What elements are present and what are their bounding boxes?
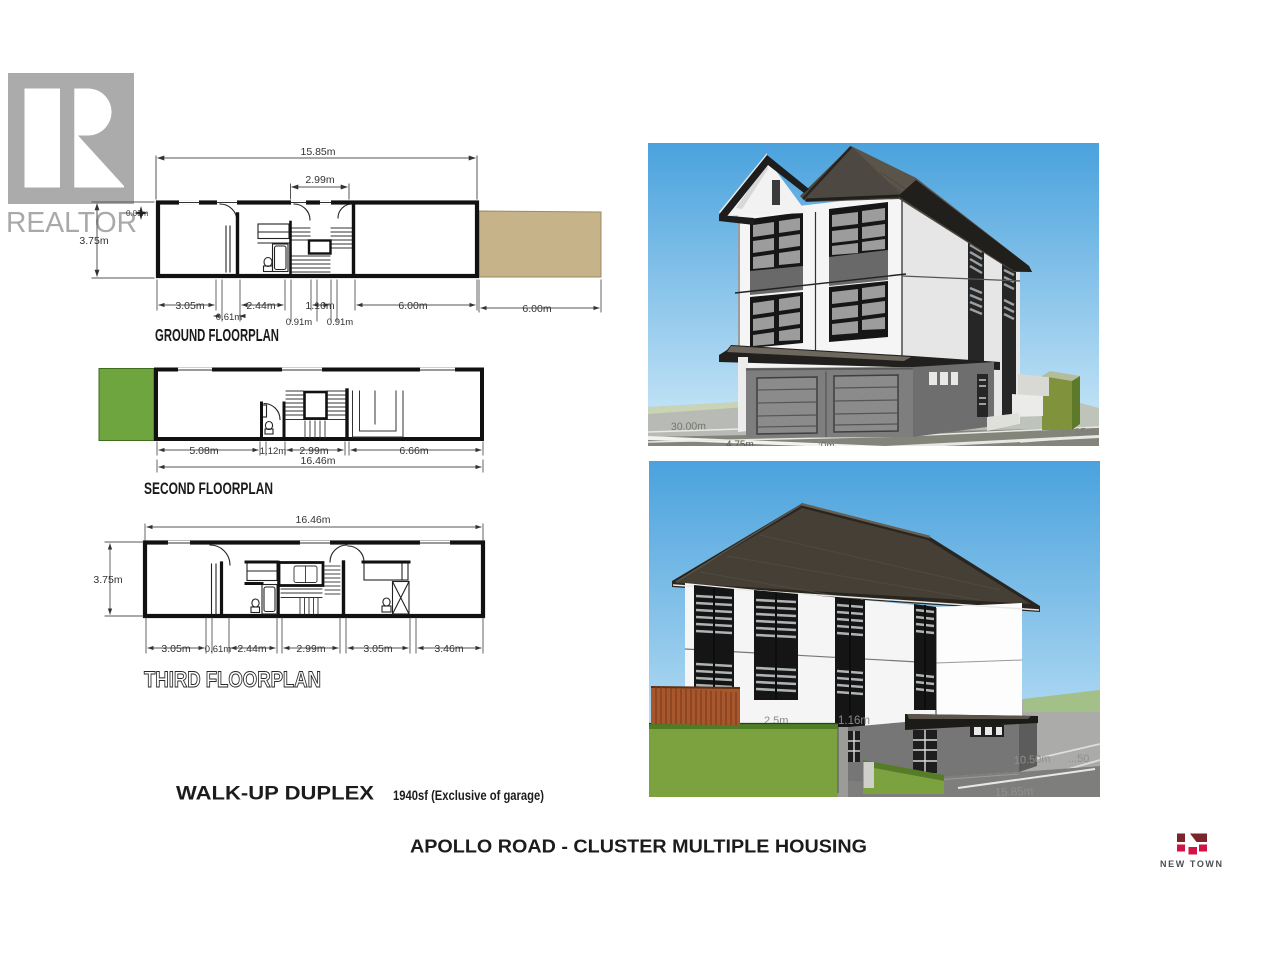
svg-text:2.99m: 2.99m — [305, 174, 334, 186]
svg-text:30.00m: 30.00m — [671, 420, 706, 433]
svg-text:2.44m: 2.44m — [237, 643, 266, 655]
svg-text:NEW TOWN: NEW TOWN — [1160, 859, 1224, 869]
svg-text:3.46m: 3.46m — [434, 643, 463, 655]
svg-text:16.46m: 16.46m — [295, 514, 330, 526]
svg-text:...50: ...50 — [1068, 753, 1089, 765]
svg-text:WALK-UP DUPLEX: WALK-UP DUPLEX — [176, 783, 374, 805]
svg-text:3.75m: 3.75m — [93, 574, 122, 586]
svg-text:3.05m: 3.05m — [363, 643, 392, 655]
svg-text:6.00m: 6.00m — [522, 303, 551, 315]
svg-text:1.12m: 1.12m — [260, 446, 286, 457]
svg-text::0m: :0m — [818, 441, 835, 452]
svg-text:1.16m: 1.16m — [305, 300, 334, 312]
svg-text:0.61m: 0.61m — [216, 312, 242, 323]
svg-text:16.46m: 16.46m — [300, 455, 335, 467]
svg-text:3.75m: 3.75m — [79, 235, 108, 247]
svg-text:0.91m: 0.91m — [327, 317, 353, 328]
svg-text:5.08m: 5.08m — [189, 445, 218, 457]
svg-text:1940sf (Exclusive of garage): 1940sf (Exclusive of garage) — [393, 788, 544, 803]
svg-text:6.66m: 6.66m — [399, 445, 428, 457]
svg-text:2.99m: 2.99m — [296, 643, 325, 655]
svg-text:GROUND FLOORPLAN: GROUND FLOORPLAN — [155, 325, 279, 345]
svg-text:15.85m: 15.85m — [300, 146, 335, 158]
svg-text:6.00m: 6.00m — [398, 300, 427, 312]
svg-text:4.75m: 4.75m — [726, 440, 754, 451]
svg-text:0.61m: 0.61m — [205, 644, 231, 655]
svg-text:10.50m: 10.50m — [1014, 753, 1051, 767]
svg-text:1.16m: 1.16m — [838, 715, 870, 727]
svg-text:15.85m: 15.85m — [995, 786, 1034, 799]
svg-text:REALTOR: REALTOR — [6, 207, 137, 239]
svg-text:0.91m: 0.91m — [286, 317, 312, 328]
svg-text:3.05m: 3.05m — [175, 300, 204, 312]
svg-text:2.44m: 2.44m — [246, 300, 275, 312]
svg-text:APOLLO ROAD - CLUSTER MULTIPLE: APOLLO ROAD - CLUSTER MULTIPLE HOUSING — [410, 836, 867, 857]
svg-text:THIRD FLOORPLAN: THIRD FLOORPLAN — [144, 667, 321, 692]
svg-text:3.05m: 3.05m — [161, 643, 190, 655]
svg-text:SECOND FLOORPLAN: SECOND FLOORPLAN — [144, 479, 273, 498]
